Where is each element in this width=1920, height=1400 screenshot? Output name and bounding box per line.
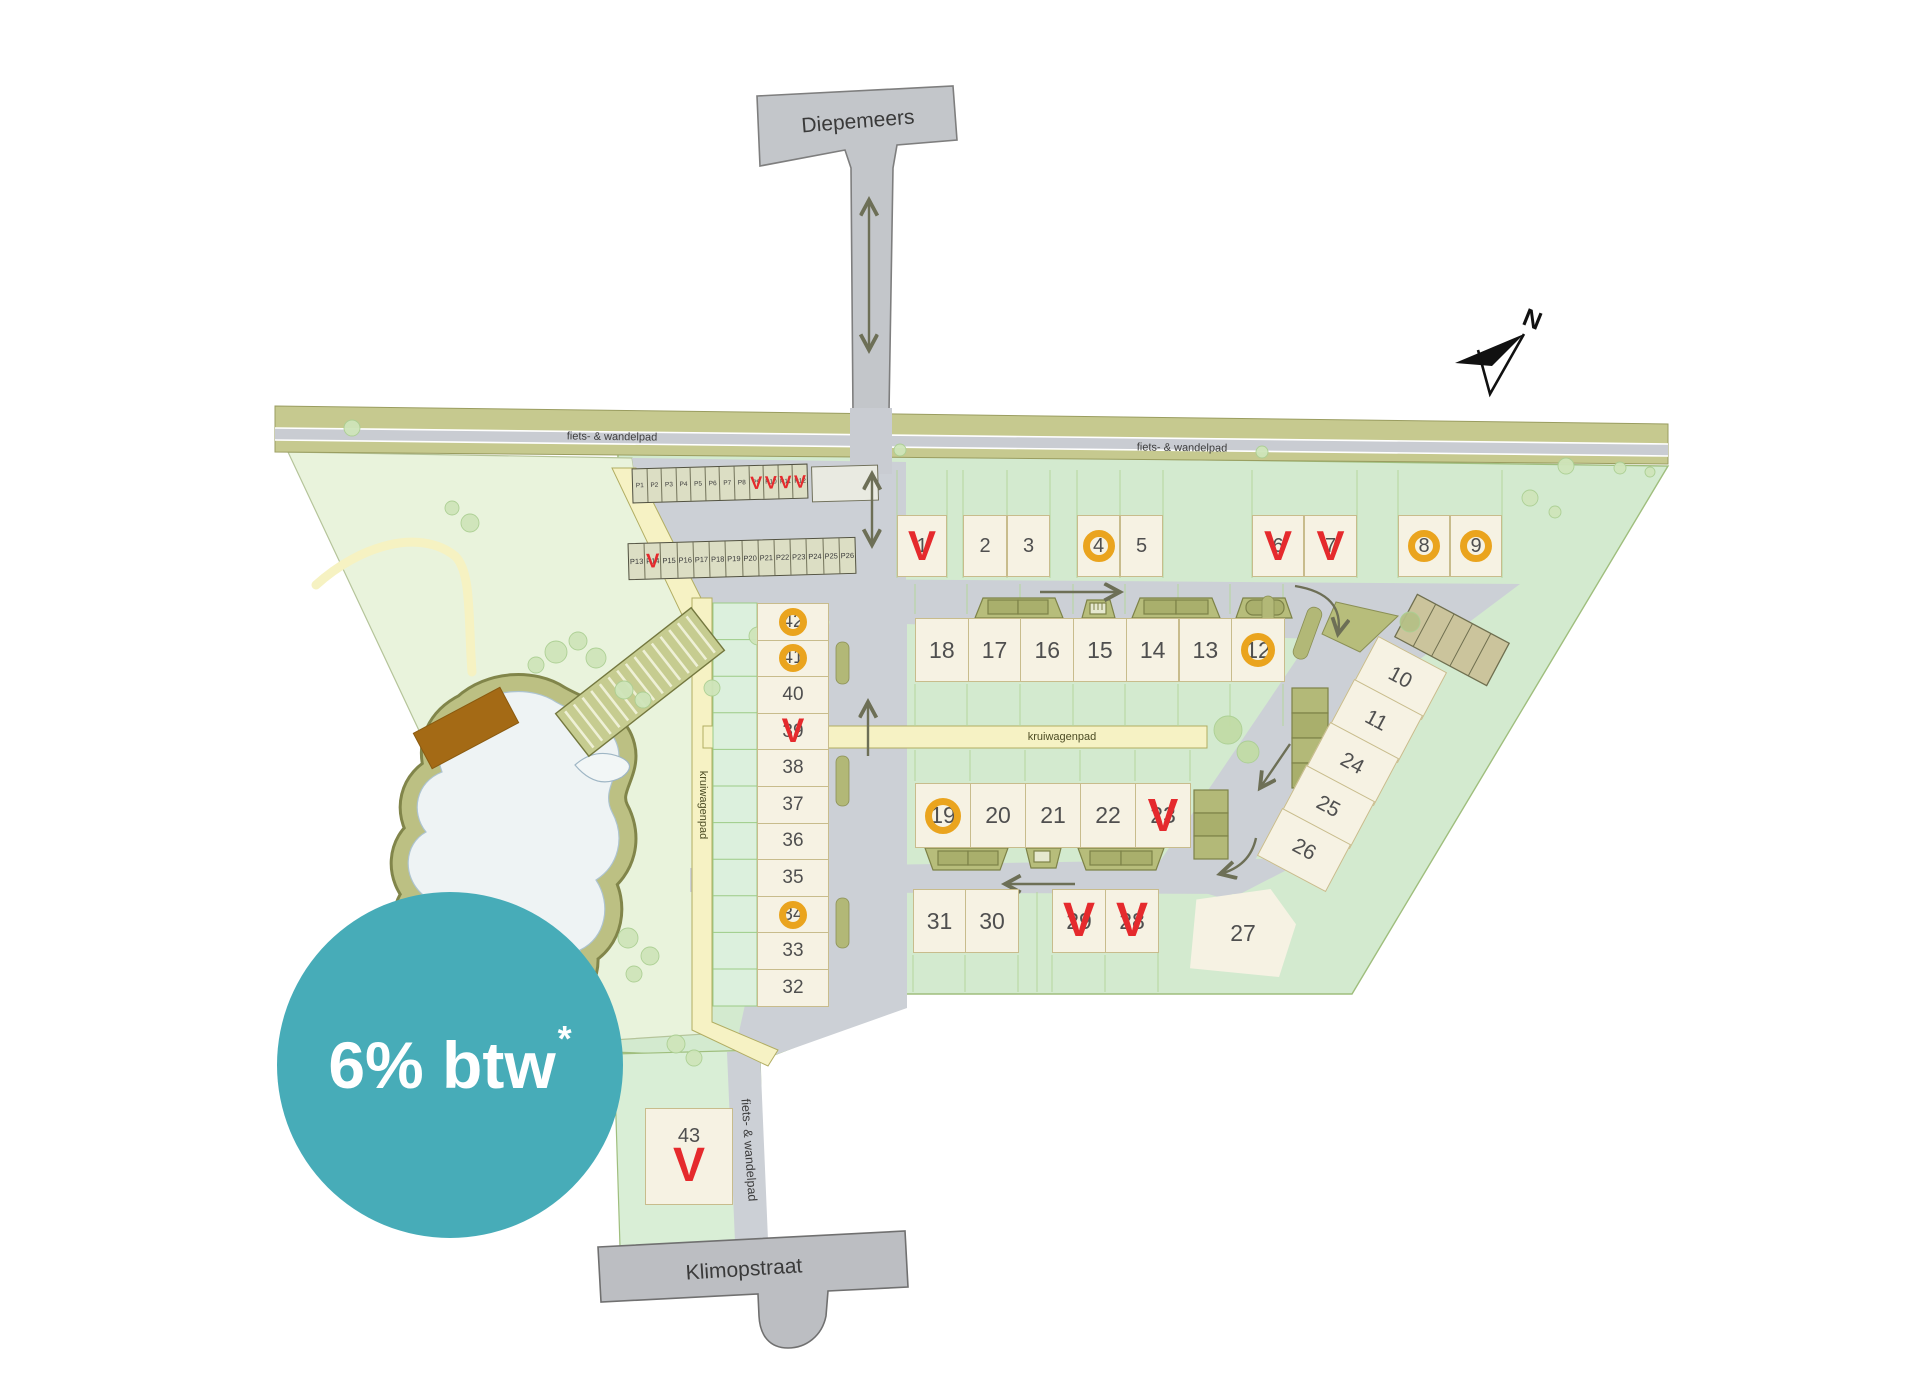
parking-spot-P10: P10V [763, 465, 778, 498]
lot-16[interactable]: 16 [1020, 618, 1074, 682]
lot-number: 22 [1095, 802, 1121, 829]
parking-spot-P15: P15 [660, 543, 677, 578]
parking-spot-label: P23 [792, 552, 806, 561]
lot-number: 14 [1140, 637, 1166, 664]
bike-path-label-right: fiets- & wandelpad [1137, 441, 1228, 454]
vat-promo-badge: 6% btw* [277, 892, 623, 1238]
lot-29[interactable]: 29V [1052, 889, 1106, 953]
lot-37[interactable]: 37 [757, 786, 829, 824]
sold-mark: V [779, 473, 792, 491]
parking-spot-P1: P1 [633, 469, 647, 502]
parking-spot-P4: P4 [675, 468, 690, 501]
lot-17[interactable]: 17 [968, 618, 1022, 682]
parking-spot-P17: P17 [692, 542, 709, 577]
lot-number: 16 [1034, 637, 1060, 664]
lot-number: 32 [782, 977, 803, 999]
lot-42[interactable]: 42 [757, 603, 829, 641]
street-crossing [850, 408, 892, 474]
parking-spot-label: P25 [824, 551, 838, 560]
lot-number: 5 [1136, 535, 1147, 558]
parking-spot-label: P2 [650, 482, 658, 489]
parking-spot-P13: P13 [629, 544, 645, 579]
lot-43[interactable]: 43V [645, 1108, 733, 1205]
parking-row-1: P1P2P3P4P5P6P7P8P9VP10VP11VP12V [632, 464, 809, 504]
parking-spot-P7: P7 [719, 467, 734, 500]
lot-number: 35 [782, 867, 803, 889]
option-mark [1083, 530, 1115, 562]
lot-3[interactable]: 3 [1007, 515, 1050, 577]
lot-30[interactable]: 30 [965, 889, 1019, 953]
lot-number: 17 [982, 637, 1008, 664]
lot-22[interactable]: 22 [1080, 783, 1136, 848]
parking-spot-P5: P5 [690, 467, 705, 500]
option-mark [1408, 530, 1440, 562]
parking-spot-P26: P26 [838, 538, 855, 573]
sold-mark: V [782, 716, 805, 747]
lot-15[interactable]: 15 [1073, 618, 1127, 682]
parking-spot-P16: P16 [676, 542, 693, 577]
option-mark [1460, 530, 1492, 562]
sold-mark: V [1116, 899, 1148, 942]
street-klimopstraat [598, 1231, 908, 1348]
lot-39[interactable]: 39V [757, 713, 829, 751]
parking-spot-P11: P11V [777, 465, 792, 498]
parking-spot-P2: P2 [646, 469, 661, 502]
bike-path-label-left: fiets- & wandelpad [567, 430, 658, 443]
parking-spot-P23: P23 [790, 539, 807, 574]
lot-number: 3 [1023, 535, 1034, 558]
lot-number: 27 [1230, 920, 1256, 947]
lot-31[interactable]: 31 [913, 889, 966, 953]
option-mark [779, 901, 807, 929]
parking-spot-P25: P25 [822, 538, 839, 573]
sold-mark: V [1264, 527, 1292, 565]
sold-mark: V [765, 473, 778, 491]
lot-number: 36 [782, 830, 803, 852]
parking-spot-label: P16 [678, 555, 692, 564]
lot-21[interactable]: 21 [1025, 783, 1081, 848]
street-diepemeers [757, 86, 957, 414]
parking-spot-label: P24 [808, 552, 822, 561]
parking-spot-P20: P20 [741, 541, 758, 576]
lot-4[interactable]: 4 [1077, 515, 1120, 577]
lot-number: 26 [1288, 834, 1320, 866]
lot-number: 15 [1087, 637, 1113, 664]
barrow-path-label-horizontal: kruiwagenpad [1028, 731, 1097, 743]
sold-mark: V [794, 472, 807, 490]
parking-spot-P14: P14V [644, 543, 661, 578]
parking-spot-P8: P8 [734, 466, 749, 499]
lot-number: 21 [1040, 802, 1066, 829]
sold-mark: V [1316, 527, 1344, 565]
lot-1[interactable]: 1V [897, 515, 947, 577]
lot-40[interactable]: 40 [757, 676, 829, 714]
parking-spot-P12: P12V [792, 465, 807, 498]
lot-33[interactable]: 33 [757, 932, 829, 970]
parking-spot-label: P4 [679, 481, 687, 488]
option-mark [925, 798, 961, 834]
lot-35[interactable]: 35 [757, 859, 829, 897]
parking-spot-label: P13 [630, 557, 644, 566]
parking-spot-label: P7 [723, 480, 731, 487]
lot-19[interactable]: 19 [915, 783, 971, 848]
parking-spot-P22: P22 [773, 540, 790, 575]
option-mark [779, 608, 807, 636]
parking-spot-label: P18 [711, 554, 725, 563]
lot-number: 30 [979, 908, 1005, 935]
vat-promo-text: 6% btw [328, 1027, 555, 1103]
lot-number: 40 [782, 684, 803, 706]
lot-12[interactable]: 12 [1231, 618, 1285, 682]
lot-number: 10 [1384, 662, 1416, 694]
parking-spot-label: P15 [662, 556, 676, 565]
lot-36[interactable]: 36 [757, 823, 829, 861]
site-plan-canvas: 1V23456V7V89181716151413121920212223V313… [0, 0, 1920, 1400]
lot-23[interactable]: 23V [1135, 783, 1191, 848]
lot-number: 24 [1336, 748, 1368, 780]
sold-mark: V [1148, 795, 1179, 836]
lot-28[interactable]: 28V [1105, 889, 1159, 953]
lot-number: 11 [1361, 705, 1392, 736]
option-mark [1241, 633, 1275, 667]
parking-pad [812, 465, 879, 502]
parking-spot-label: P26 [841, 551, 855, 560]
lot-number: 20 [985, 802, 1011, 829]
sold-mark: V [750, 473, 763, 491]
lot-13[interactable]: 13 [1179, 618, 1233, 682]
sold-mark: V [908, 527, 936, 565]
parking-spot-P3: P3 [661, 468, 676, 501]
parking-row-2: P13P14VP15P16P17P18P19P20P21P22P23P24P25… [628, 537, 857, 580]
parking-spot-label: P19 [727, 554, 741, 563]
lot-number: 13 [1193, 637, 1219, 664]
lot-number: 25 [1312, 791, 1344, 823]
parking-spot-label: P8 [738, 479, 746, 486]
parking-spot-label: P20 [743, 554, 757, 563]
lot-18[interactable]: 18 [915, 618, 969, 682]
lot-number: 37 [782, 794, 803, 816]
west-gardens [713, 603, 757, 1006]
parking-spot-label: P5 [694, 481, 702, 488]
lot-34[interactable]: 34 [757, 896, 829, 934]
map-graphics [0, 0, 1920, 1400]
parking-spot-P19: P19 [725, 541, 742, 576]
lot-number: 33 [782, 940, 803, 962]
parking-spot-label: P3 [665, 481, 673, 488]
lot-8[interactable]: 8 [1398, 515, 1450, 577]
lot-20[interactable]: 20 [970, 783, 1026, 848]
parking-spot-P21: P21 [757, 540, 774, 575]
lot-number: 18 [929, 637, 955, 664]
lot-41[interactable]: 41 [757, 640, 829, 678]
sold-mark: V [646, 551, 660, 571]
sold-mark: V [673, 1144, 705, 1187]
lot-32[interactable]: 32 [757, 969, 829, 1007]
compass-north-arrow [1455, 334, 1524, 394]
lot-9[interactable]: 9 [1450, 515, 1502, 577]
sold-mark: V [1063, 899, 1095, 942]
parking-spot-label: P17 [695, 555, 709, 564]
parking-spot-P18: P18 [709, 541, 726, 576]
lot-number: 2 [979, 535, 990, 558]
parking-spot-P6: P6 [704, 467, 719, 500]
parking-spot-P24: P24 [806, 539, 823, 574]
parking-spot-label: P21 [760, 553, 774, 562]
lot-2[interactable]: 2 [963, 515, 1007, 577]
lot-38[interactable]: 38 [757, 749, 829, 787]
lot-number: 31 [927, 908, 953, 935]
lot-14[interactable]: 14 [1126, 618, 1180, 682]
lot-5[interactable]: 5 [1120, 515, 1163, 577]
lot-number: 38 [782, 757, 803, 779]
barrow-path-label-vertical: kruiwagenpad [697, 771, 709, 840]
parking-spot-label: P1 [636, 482, 644, 489]
lot-7[interactable]: 7V [1304, 515, 1357, 577]
lot-27[interactable]: 27 [1190, 889, 1296, 977]
parking-spot-P9: P9V [748, 466, 763, 499]
parking-spot-label: P22 [776, 553, 790, 562]
lot-6[interactable]: 6V [1252, 515, 1304, 577]
parking-spot-label: P6 [709, 480, 717, 487]
vat-promo-asterisk: * [558, 1018, 572, 1060]
